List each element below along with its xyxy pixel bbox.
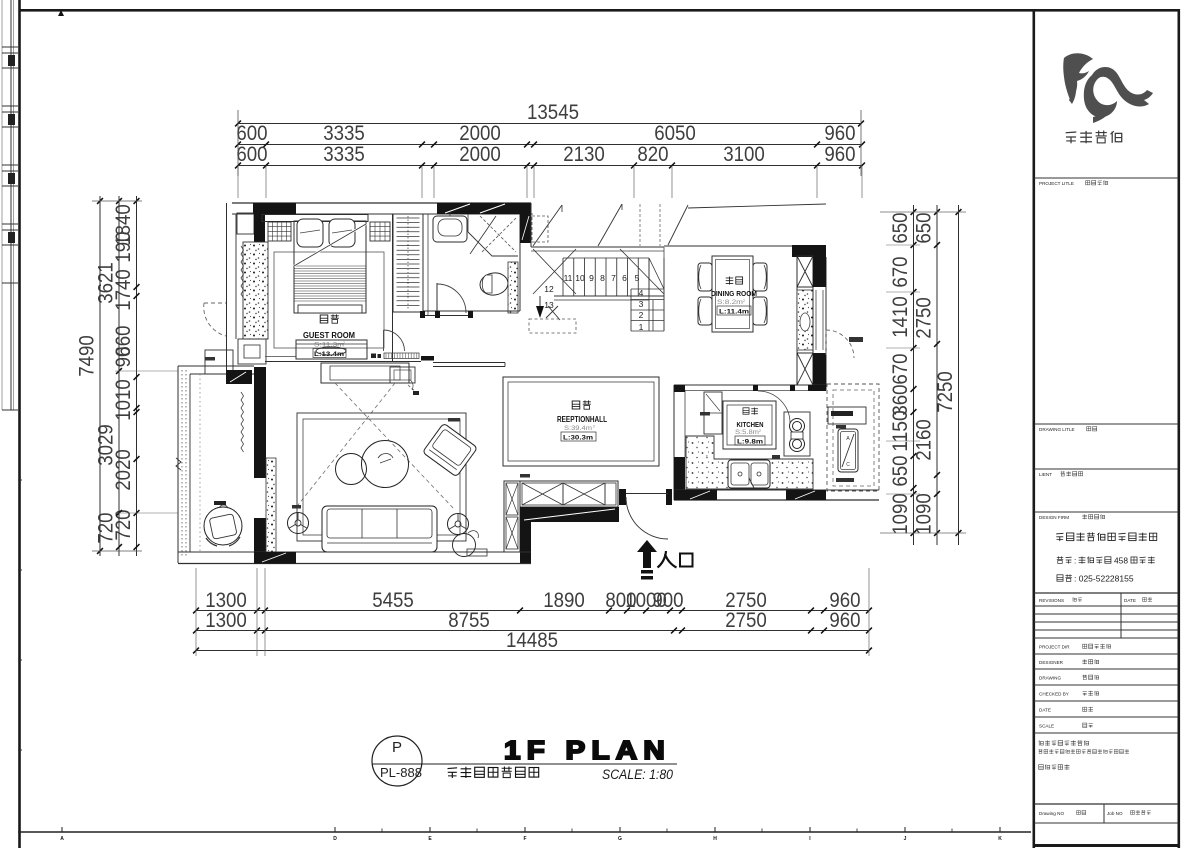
svg-text:LIENT: LIENT [1039,472,1052,477]
svg-text:3335: 3335 [323,143,365,166]
svg-text:Job NO: Job NO [1107,811,1123,816]
svg-text:960: 960 [824,122,855,145]
svg-text:K: K [998,836,1002,842]
svg-text:3621: 3621 [95,262,118,304]
svg-text:CHECKED BY: CHECKED BY [1039,692,1069,697]
svg-text:H: H [713,836,717,842]
svg-text:DRAWING LITLE: DRAWING LITLE [1039,427,1075,432]
svg-text:600: 600 [236,122,267,145]
svg-text:P: P [392,739,402,756]
svg-text:1090: 1090 [889,493,912,535]
svg-text:SCALE: 1:80: SCALE: 1:80 [602,767,673,782]
svg-text:11: 11 [564,273,573,283]
svg-text:900: 900 [652,589,683,612]
svg-text:10: 10 [575,273,585,283]
svg-text:J: J [904,836,907,842]
svg-text:PROJECT DIR: PROJECT DIR [1039,645,1070,650]
svg-text:L:9.8m: L:9.8m [737,439,763,446]
svg-text:6050: 6050 [654,122,696,145]
svg-text:1150: 1150 [889,410,912,452]
svg-text:7250: 7250 [934,371,957,413]
svg-text:DINING ROOM: DINING ROOM [711,289,757,298]
svg-text:2750: 2750 [725,609,767,632]
svg-text:PROJECT LITLE: PROJECT LITLE [1039,181,1074,186]
svg-text:2000: 2000 [459,122,501,145]
svg-text:SCALE: SCALE [1039,724,1054,729]
svg-text:14485: 14485 [506,629,558,652]
svg-text:820: 820 [637,143,668,166]
svg-text:1410: 1410 [889,296,912,338]
svg-text:S:8.2m: S:8.2m [717,299,743,306]
svg-text:D: D [333,836,337,842]
svg-text:REVISIONS: REVISIONS [1039,598,1064,603]
svg-text:5: 5 [635,273,640,283]
svg-text:5455: 5455 [372,589,414,612]
svg-text:3029: 3029 [95,424,118,466]
svg-text:2: 2 [639,310,644,320]
svg-text:REEPTIONHALL: REEPTIONHALL [557,415,607,424]
svg-text:7490: 7490 [76,335,99,377]
svg-text:650: 650 [913,212,936,243]
svg-text:PL-888: PL-888 [380,766,422,780]
svg-text:6: 6 [622,273,627,283]
svg-text:650: 650 [889,212,912,243]
svg-text:1010: 1010 [112,379,135,421]
svg-text:Drawing NO: Drawing NO [1039,811,1064,816]
svg-text:1090: 1090 [913,493,936,535]
svg-text:720: 720 [95,512,118,543]
svg-text:1890: 1890 [543,589,585,612]
svg-text:458: 458 [1114,557,1129,566]
svg-text:C: C [846,462,850,468]
svg-text:GUEST ROOM: GUEST ROOM [303,331,355,340]
svg-text:4: 4 [639,288,644,298]
svg-text:12: 12 [544,284,554,294]
svg-text:3100: 3100 [723,143,765,166]
svg-text:190: 190 [112,231,135,262]
svg-text:2000: 2000 [459,143,501,166]
svg-text:L:11.4m: L:11.4m [719,309,749,316]
svg-text:1300: 1300 [205,609,247,632]
svg-text:A: A [60,836,64,842]
svg-text:S:39.4m: S:39.4m [564,425,592,432]
svg-text:2130: 2130 [563,143,605,166]
svg-text:DESIGN FIRM: DESIGN FIRM [1039,515,1069,520]
svg-text:9: 9 [589,273,594,283]
svg-text:670: 670 [889,256,912,287]
svg-text:670: 670 [889,353,912,384]
svg-text:3: 3 [639,299,644,309]
svg-text:600: 600 [236,143,267,166]
svg-text:G: G [618,836,622,842]
svg-text::: : [1074,557,1076,566]
svg-text:3335: 3335 [323,122,365,145]
svg-text:2160: 2160 [913,419,936,461]
svg-text:L:30.3m: L:30.3m [563,435,593,442]
svg-text:960: 960 [824,143,855,166]
svg-text:7: 7 [611,273,616,283]
svg-text:13545: 13545 [527,101,579,124]
svg-text:: 025-52228155: : 025-52228155 [1074,574,1134,584]
svg-text:DATE: DATE [1039,708,1051,713]
svg-text:650: 650 [889,455,912,486]
svg-text:DESIGNER: DESIGNER [1039,660,1064,665]
svg-text:90: 90 [112,347,135,368]
svg-text:13: 13 [544,300,554,310]
svg-text:2750: 2750 [913,297,936,339]
svg-text:960: 960 [829,609,860,632]
svg-text:8: 8 [600,273,605,283]
svg-text:1: 1 [639,322,644,332]
svg-text:S:5.8m: S:5.8m [735,430,759,436]
svg-text:DRAWING: DRAWING [1039,676,1061,681]
svg-text:1F PLAN: 1F PLAN [504,735,671,765]
svg-text:8755: 8755 [448,609,490,632]
svg-text:DATE: DATE [1124,598,1136,603]
svg-text:F: F [523,836,526,842]
